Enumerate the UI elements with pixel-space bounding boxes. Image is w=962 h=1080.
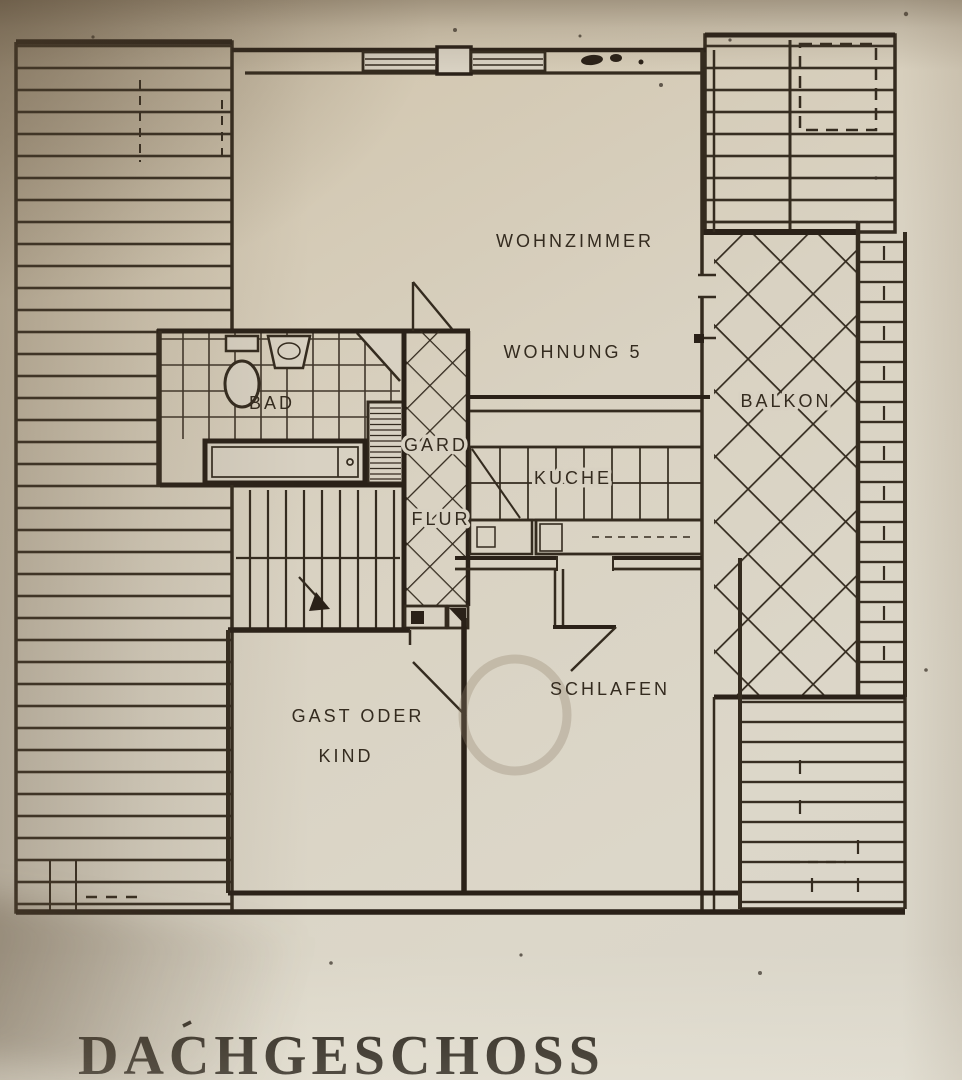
- window-north-2: [471, 52, 545, 71]
- kitchen-south-wall: [455, 556, 702, 671]
- roof-hatch-right-strip: [858, 232, 905, 697]
- room-label-kueche: KUCHE: [534, 468, 612, 488]
- page-title: DACHGESCHOSS: [78, 1025, 605, 1080]
- bedroom-door: [571, 627, 616, 671]
- room-label-balkon: BALKON: [740, 391, 831, 411]
- room-label-wohnzimmer: WOHNZIMMER: [496, 231, 654, 251]
- room-label-kind: KIND: [318, 746, 373, 766]
- hall-wardrobe-strip: [404, 282, 468, 630]
- living-room-door: [413, 282, 452, 331]
- roof-hatch-right-top: [705, 35, 895, 232]
- room-label-schlafen: SCHLAFEN: [550, 679, 670, 699]
- floor-plan-photo: WOHNZIMMER WOHNUNG 5 BAD GARD FLUR KUCHE…: [0, 0, 962, 1080]
- roof-hatch-right-bottom: [740, 697, 905, 909]
- room-label-gast-oder: GAST ODER: [292, 706, 425, 726]
- north-wall: [232, 47, 706, 74]
- window-north-1: [363, 52, 437, 71]
- room-label-flur: FLUR: [411, 509, 470, 529]
- stairs-direction-arrow: [309, 592, 330, 611]
- room-label-gard: GARD: [404, 435, 468, 455]
- apartment-label: WOHNUNG 5: [504, 342, 643, 362]
- staircase: [232, 485, 400, 630]
- floor-plan-drawing: WOHNZIMMER WOHNUNG 5 BAD GARD FLUR KUCHE…: [0, 0, 962, 1080]
- room-label-bad: BAD: [249, 393, 295, 413]
- wall-pillar: [437, 47, 471, 74]
- toilet-tank: [226, 336, 258, 351]
- sink-icon: [268, 336, 310, 368]
- roof-hatch-left: [16, 42, 232, 912]
